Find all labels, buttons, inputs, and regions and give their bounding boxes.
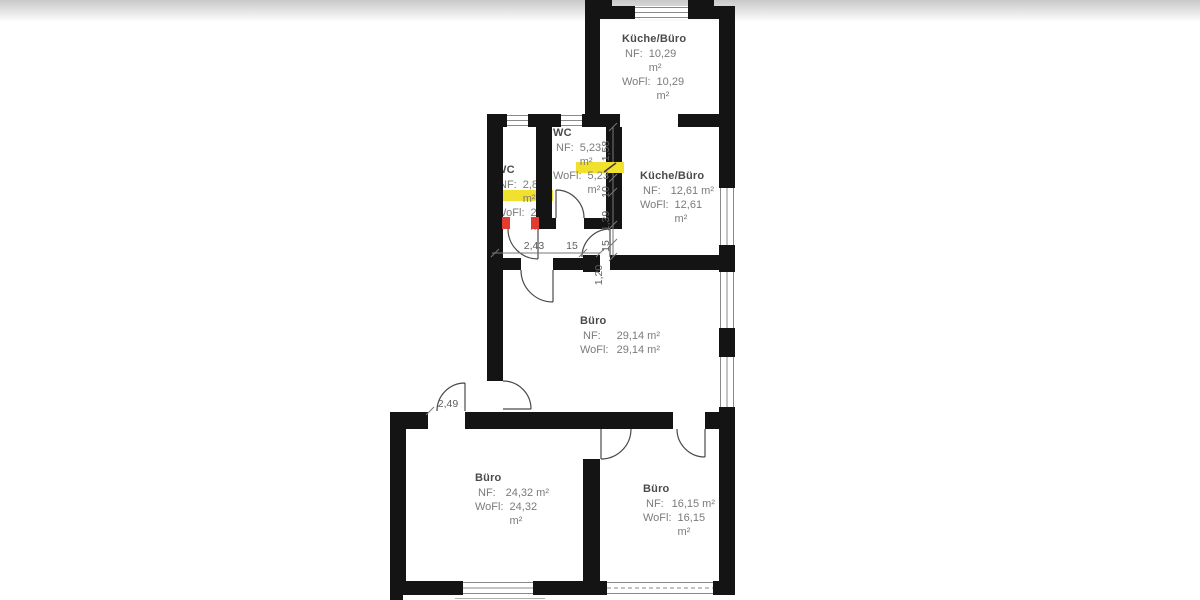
wall: [719, 407, 735, 595]
wall: [528, 114, 561, 127]
door-arc: [521, 270, 553, 302]
wall: [465, 412, 673, 429]
wall: [539, 218, 556, 229]
dimension-tick: [426, 407, 434, 415]
window: [507, 114, 528, 127]
highlights: [576, 162, 624, 173]
floorplan-page: WC NF: 2,81 m² WoFl: 2,81 m²: [0, 0, 1200, 600]
wall: [533, 581, 607, 595]
wall: [583, 255, 600, 272]
wall: [536, 127, 552, 218]
red-mark: [531, 217, 539, 229]
wall: [719, 328, 735, 357]
wall: [719, 6, 735, 188]
wall: [585, 6, 635, 19]
door-arc: [508, 229, 538, 259]
wall: [584, 218, 622, 229]
door-arc: [556, 190, 584, 218]
window: [719, 272, 735, 328]
wall: [390, 589, 403, 600]
wall: [610, 255, 719, 270]
wall: [705, 412, 719, 429]
red-mark: [502, 217, 510, 229]
wall: [585, 19, 600, 114]
wall: [713, 581, 719, 595]
wall: [487, 258, 521, 270]
door-arc: [677, 429, 705, 457]
window: [607, 581, 713, 595]
floorplan-canvas: [0, 0, 1200, 600]
window: [635, 6, 688, 19]
door-arc: [503, 381, 531, 409]
wall: [487, 114, 503, 381]
window: [719, 357, 735, 407]
window: [455, 581, 545, 599]
wall: [553, 258, 583, 270]
wall: [583, 459, 600, 595]
window: [719, 188, 735, 245]
highlight-marker-wc-right: [576, 162, 624, 173]
door-arc: [437, 383, 465, 411]
walls: [390, 0, 735, 600]
wall: [719, 245, 735, 272]
door-jamb-marks: [502, 217, 539, 229]
wall: [678, 114, 719, 127]
window: [561, 114, 582, 127]
door-arc: [601, 429, 631, 459]
wall: [390, 412, 406, 595]
